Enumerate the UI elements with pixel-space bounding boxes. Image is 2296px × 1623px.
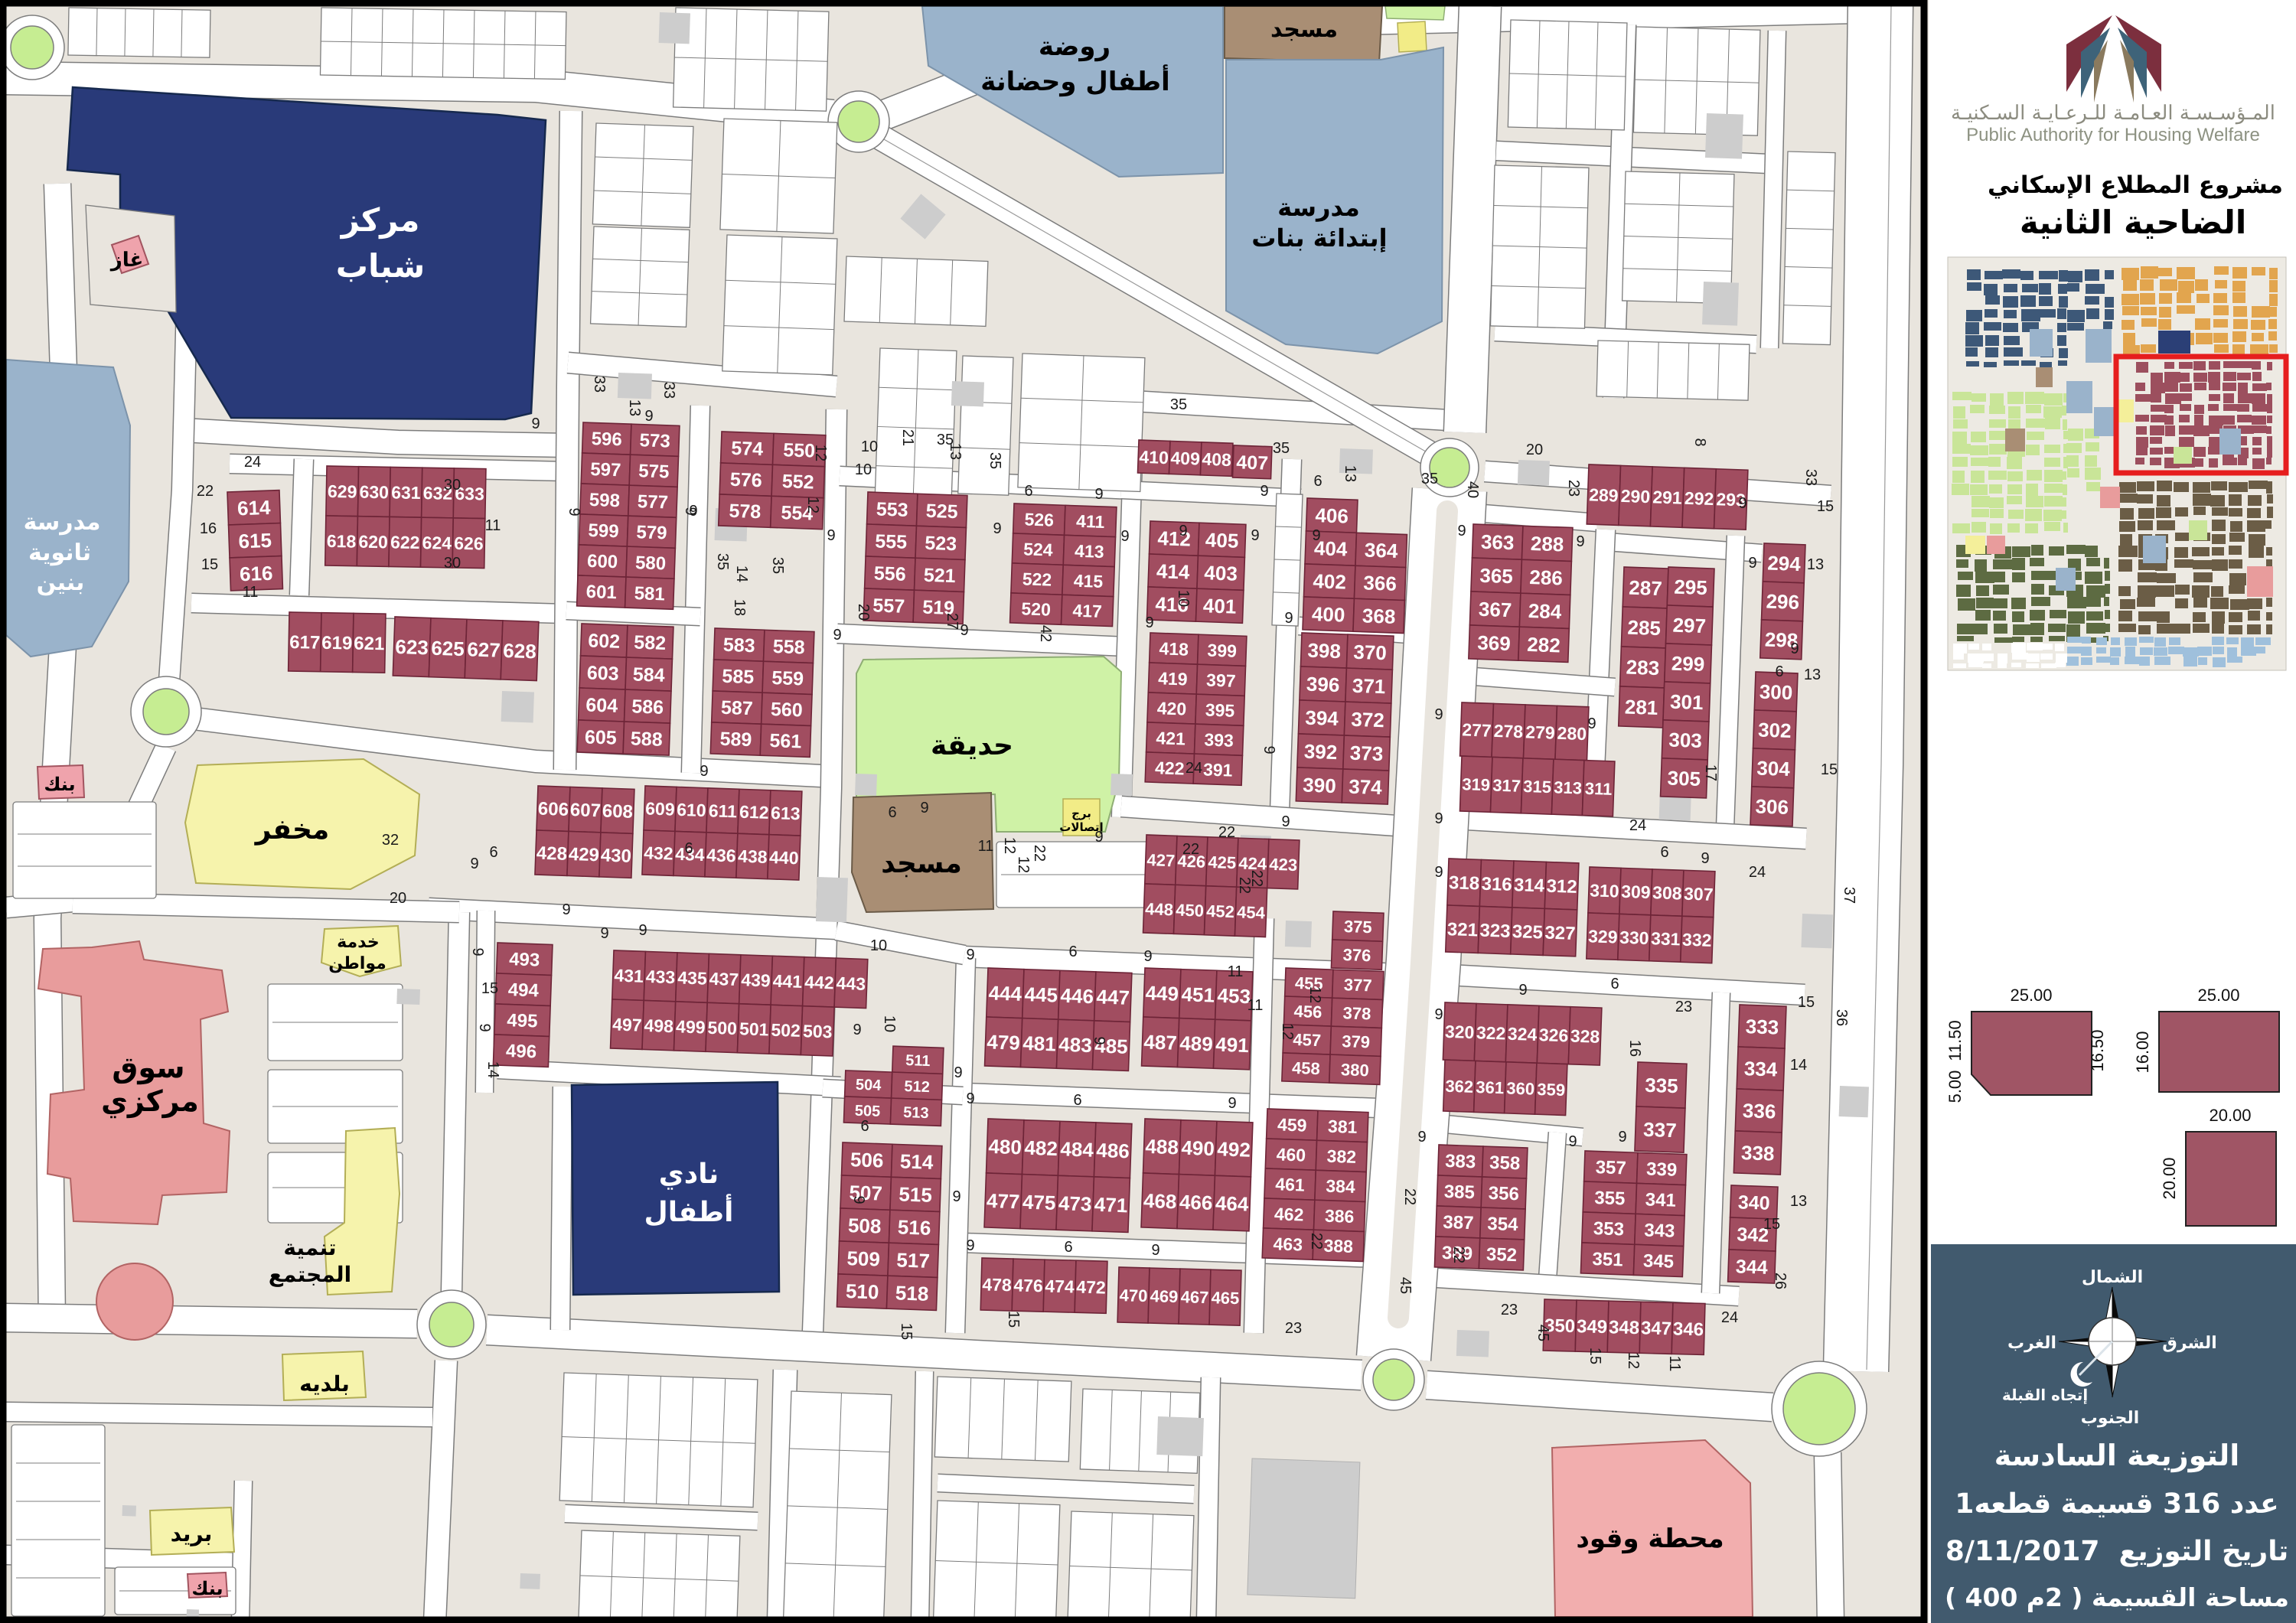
svg-text:312: 312: [1546, 876, 1577, 898]
svg-text:558: 558: [772, 636, 805, 658]
svg-text:379: 379: [1342, 1031, 1371, 1051]
svg-text:13: 13: [1804, 666, 1821, 683]
svg-text:302: 302: [1758, 719, 1792, 742]
svg-text:467: 467: [1180, 1287, 1208, 1307]
svg-text:493: 493: [509, 949, 540, 970]
svg-text:9: 9: [1151, 1242, 1159, 1259]
svg-text:9: 9: [700, 763, 708, 780]
svg-text:6: 6: [684, 840, 693, 857]
svg-text:13: 13: [1790, 1193, 1807, 1210]
svg-text:6: 6: [489, 844, 497, 861]
svg-text:584: 584: [632, 663, 665, 686]
svg-text:295: 295: [1674, 575, 1707, 599]
svg-text:399: 399: [1207, 640, 1237, 661]
svg-text:15: 15: [1798, 994, 1815, 1011]
svg-text:422: 422: [1155, 758, 1185, 778]
svg-text:445: 445: [1024, 983, 1058, 1006]
svg-text:9: 9: [1568, 1133, 1577, 1150]
svg-text:383: 383: [1445, 1151, 1476, 1172]
svg-text:472: 472: [1076, 1277, 1106, 1298]
svg-text:573: 573: [639, 430, 670, 451]
svg-text:608: 608: [602, 800, 633, 822]
svg-text:45: 45: [1534, 1325, 1551, 1341]
svg-text:45: 45: [1397, 1277, 1414, 1294]
svg-text:560: 560: [770, 699, 803, 721]
svg-text:631: 631: [391, 482, 421, 503]
svg-text:356: 356: [1488, 1183, 1519, 1204]
svg-text:620: 620: [358, 532, 388, 552]
svg-text:418: 418: [1159, 638, 1189, 659]
svg-text:16.50: 16.50: [2088, 1029, 2107, 1071]
svg-text:357: 357: [1595, 1157, 1626, 1178]
svg-text:421: 421: [1156, 728, 1186, 748]
svg-text:461: 461: [1275, 1174, 1305, 1194]
svg-text:16: 16: [1626, 1040, 1643, 1057]
svg-text:341: 341: [1645, 1189, 1676, 1211]
svg-text:407: 407: [1236, 451, 1269, 474]
svg-text:15: 15: [898, 1323, 915, 1340]
svg-text:9: 9: [1261, 745, 1277, 754]
svg-text:22: 22: [197, 483, 214, 500]
svg-text:473: 473: [1058, 1191, 1091, 1215]
svg-text:20.00: 20.00: [2209, 1106, 2251, 1125]
svg-text:289: 289: [1589, 484, 1619, 505]
svg-text:403: 403: [1204, 561, 1238, 585]
svg-text:502: 502: [771, 1020, 801, 1041]
svg-text:336: 336: [1742, 1099, 1776, 1123]
svg-text:35: 35: [769, 557, 786, 574]
svg-text:415: 415: [1073, 571, 1103, 592]
svg-text:373: 373: [1349, 741, 1383, 765]
svg-text:15: 15: [1763, 1216, 1780, 1233]
svg-text:405: 405: [1205, 528, 1238, 552]
svg-text:625: 625: [431, 637, 465, 660]
svg-text:556: 556: [873, 562, 906, 585]
svg-text:9: 9: [1251, 527, 1259, 544]
svg-text:10: 10: [855, 461, 872, 478]
svg-text:9: 9: [1281, 813, 1290, 830]
svg-text:9: 9: [682, 507, 699, 515]
svg-text:6: 6: [888, 804, 896, 821]
svg-text:402: 402: [1313, 569, 1346, 593]
svg-text:582: 582: [634, 632, 667, 654]
svg-text:367: 367: [1478, 598, 1512, 621]
svg-text:456: 456: [1293, 1002, 1322, 1022]
svg-text:604: 604: [585, 694, 618, 716]
svg-text:628: 628: [503, 639, 536, 663]
svg-text:282: 282: [1527, 633, 1561, 657]
svg-text:9: 9: [853, 1022, 861, 1038]
svg-text:18: 18: [731, 599, 748, 616]
svg-text:362: 362: [1445, 1077, 1474, 1097]
svg-text:465: 465: [1211, 1288, 1239, 1308]
svg-text:464: 464: [1215, 1191, 1249, 1216]
svg-text:12: 12: [1625, 1352, 1642, 1369]
svg-text:23: 23: [1285, 1320, 1302, 1337]
svg-text:310: 310: [1590, 880, 1619, 901]
svg-text:9: 9: [1417, 1129, 1426, 1146]
svg-text:460: 460: [1276, 1144, 1306, 1165]
svg-text:518: 518: [895, 1281, 928, 1305]
svg-text:587: 587: [721, 697, 754, 719]
svg-text:301: 301: [1670, 690, 1704, 714]
svg-text:411: 411: [1076, 511, 1105, 532]
svg-text:9: 9: [1790, 640, 1799, 657]
svg-text:306: 306: [1755, 795, 1789, 819]
svg-text:346: 346: [1673, 1318, 1704, 1340]
svg-text:574: 574: [731, 438, 764, 460]
svg-text:9: 9: [1091, 1036, 1107, 1045]
svg-text:492: 492: [1217, 1137, 1251, 1161]
svg-text:474: 474: [1045, 1276, 1075, 1296]
svg-text:277: 277: [1462, 719, 1492, 740]
svg-text:513: 513: [903, 1104, 929, 1122]
svg-text:24: 24: [1629, 817, 1646, 834]
svg-text:23: 23: [1565, 480, 1582, 497]
svg-text:423: 423: [1269, 855, 1298, 875]
svg-text:509: 509: [846, 1247, 880, 1270]
svg-text:619: 619: [321, 633, 353, 654]
svg-text:307: 307: [1684, 884, 1714, 904]
svg-text:20.00: 20.00: [2160, 1157, 2179, 1199]
svg-text:9: 9: [920, 800, 928, 816]
svg-text:409: 409: [1170, 448, 1200, 468]
svg-text:345: 345: [1643, 1250, 1675, 1272]
svg-text:6: 6: [1660, 844, 1668, 861]
svg-text:27: 27: [944, 613, 960, 630]
svg-text:9: 9: [476, 1023, 493, 1031]
svg-text:449: 449: [1145, 981, 1179, 1005]
svg-text:612: 612: [739, 802, 769, 823]
svg-text:14: 14: [484, 1061, 501, 1078]
svg-text:624: 624: [422, 533, 452, 553]
svg-text:327: 327: [1544, 923, 1576, 944]
svg-text:370: 370: [1353, 640, 1387, 664]
svg-text:414: 414: [1156, 559, 1191, 584]
svg-text:344: 344: [1735, 1256, 1768, 1278]
svg-text:425: 425: [1208, 852, 1237, 872]
svg-text:583: 583: [722, 634, 755, 657]
svg-text:9: 9: [1457, 523, 1466, 539]
svg-text:515: 515: [899, 1182, 932, 1206]
svg-text:561: 561: [769, 730, 802, 752]
svg-text:600: 600: [587, 551, 618, 572]
svg-text:11: 11: [1247, 997, 1264, 1014]
svg-text:9: 9: [850, 1195, 867, 1204]
svg-text:510: 510: [846, 1279, 879, 1303]
svg-text:24: 24: [244, 454, 261, 471]
svg-text:552: 552: [781, 471, 814, 493]
svg-text:452: 452: [1206, 901, 1235, 921]
svg-text:285: 285: [1627, 616, 1661, 640]
svg-text:20: 20: [390, 890, 406, 907]
svg-text:332: 332: [1682, 930, 1712, 950]
svg-text:397: 397: [1206, 670, 1236, 691]
svg-text:446: 446: [1060, 984, 1094, 1008]
svg-text:377: 377: [1343, 975, 1372, 995]
svg-text:9: 9: [1738, 495, 1746, 512]
svg-text:559: 559: [771, 667, 804, 689]
svg-text:12: 12: [1306, 986, 1323, 1003]
svg-text:440: 440: [769, 847, 799, 868]
svg-text:376: 376: [1342, 945, 1371, 965]
svg-text:364: 364: [1364, 538, 1398, 562]
svg-text:328: 328: [1570, 1026, 1600, 1047]
svg-text:606: 606: [537, 799, 569, 820]
svg-text:23: 23: [1501, 1302, 1518, 1318]
svg-text:281: 281: [1624, 696, 1658, 719]
svg-text:16: 16: [200, 520, 217, 537]
svg-text:33: 33: [1802, 469, 1819, 486]
svg-text:291: 291: [1652, 487, 1682, 507]
svg-text:313: 313: [1554, 777, 1583, 797]
svg-text:13: 13: [626, 399, 643, 416]
svg-text:15: 15: [1587, 1348, 1603, 1364]
svg-text:618: 618: [327, 531, 357, 552]
svg-text:605: 605: [584, 726, 617, 748]
svg-text:366: 366: [1363, 571, 1397, 595]
svg-text:9: 9: [1434, 810, 1443, 827]
svg-text:305: 305: [1667, 767, 1701, 790]
svg-text:11: 11: [978, 838, 994, 855]
svg-text:11: 11: [243, 584, 259, 601]
svg-text:525: 525: [925, 500, 958, 523]
svg-text:9: 9: [1312, 527, 1320, 544]
svg-text:630: 630: [359, 482, 389, 503]
svg-text:20: 20: [1526, 442, 1543, 458]
svg-text:577: 577: [637, 491, 668, 513]
svg-text:22: 22: [1248, 870, 1265, 887]
svg-text:37: 37: [1841, 887, 1857, 904]
svg-text:482: 482: [1024, 1136, 1058, 1160]
svg-text:9: 9: [1434, 1006, 1443, 1023]
svg-text:339: 339: [1646, 1159, 1678, 1180]
svg-text:420: 420: [1156, 698, 1186, 719]
svg-text:6: 6: [1610, 976, 1619, 992]
svg-text:9: 9: [1228, 1095, 1236, 1112]
svg-text:607: 607: [569, 800, 601, 821]
svg-text:363: 363: [1480, 530, 1514, 554]
svg-text:290: 290: [1620, 486, 1650, 507]
svg-text:521: 521: [923, 565, 956, 587]
svg-text:427: 427: [1146, 850, 1176, 870]
svg-text:613: 613: [771, 803, 801, 823]
svg-text:491: 491: [1215, 1033, 1249, 1057]
svg-text:394: 394: [1305, 706, 1339, 731]
svg-text:6: 6: [1313, 473, 1322, 490]
svg-text:597: 597: [590, 459, 621, 481]
svg-text:9: 9: [1179, 523, 1187, 539]
svg-text:9: 9: [1260, 483, 1268, 500]
svg-text:11.50: 11.50: [1945, 1020, 1965, 1061]
svg-text:25.00: 25.00: [2197, 986, 2239, 1005]
svg-text:378: 378: [1342, 1003, 1371, 1023]
svg-text:588: 588: [630, 728, 663, 750]
svg-text:596: 596: [591, 429, 622, 450]
svg-text:9: 9: [966, 947, 974, 963]
svg-text:9: 9: [1618, 1129, 1626, 1146]
svg-text:369: 369: [1477, 631, 1511, 655]
svg-text:462: 462: [1274, 1204, 1304, 1224]
svg-text:614: 614: [237, 496, 272, 520]
svg-text:308: 308: [1652, 882, 1682, 903]
svg-text:623: 623: [395, 635, 429, 659]
svg-text:575: 575: [638, 461, 670, 482]
svg-text:466: 466: [1179, 1191, 1213, 1214]
svg-text:311: 311: [1584, 779, 1612, 799]
svg-text:391: 391: [1203, 759, 1233, 780]
svg-text:500: 500: [707, 1018, 737, 1038]
svg-text:479: 479: [987, 1030, 1020, 1054]
svg-text:326: 326: [1538, 1025, 1568, 1045]
svg-text:9: 9: [1701, 850, 1709, 867]
svg-text:489: 489: [1179, 1031, 1213, 1055]
svg-text:351: 351: [1592, 1249, 1623, 1270]
svg-text:469: 469: [1150, 1286, 1178, 1306]
svg-text:9: 9: [993, 520, 1001, 537]
svg-text:347: 347: [1641, 1318, 1672, 1339]
svg-text:348: 348: [1609, 1317, 1640, 1338]
svg-text:296: 296: [1766, 590, 1799, 614]
svg-text:297: 297: [1672, 614, 1706, 637]
svg-text:517: 517: [896, 1248, 930, 1272]
svg-text:325: 325: [1512, 921, 1543, 943]
svg-text:9: 9: [1094, 486, 1103, 503]
svg-text:12: 12: [812, 445, 829, 461]
svg-text:375: 375: [1344, 917, 1373, 937]
svg-text:523: 523: [925, 533, 957, 555]
svg-text:9: 9: [954, 1064, 962, 1081]
svg-text:387: 387: [1443, 1212, 1474, 1234]
svg-text:331: 331: [1651, 928, 1681, 949]
svg-text:288: 288: [1530, 532, 1564, 556]
svg-text:432: 432: [644, 842, 673, 863]
svg-text:22: 22: [1031, 845, 1048, 862]
svg-text:358: 358: [1489, 1152, 1521, 1174]
svg-text:453: 453: [1217, 984, 1251, 1008]
svg-text:12: 12: [1015, 856, 1032, 873]
svg-text:581: 581: [634, 583, 665, 605]
svg-text:360: 360: [1506, 1078, 1535, 1098]
svg-text:448: 448: [1145, 899, 1174, 919]
svg-text:522: 522: [1022, 569, 1052, 589]
svg-text:10: 10: [861, 438, 878, 455]
svg-text:10: 10: [1175, 590, 1192, 607]
svg-text:21: 21: [899, 429, 916, 446]
svg-text:609: 609: [645, 798, 675, 819]
svg-text:488: 488: [1145, 1135, 1179, 1159]
svg-text:330: 330: [1619, 927, 1649, 948]
svg-text:443: 443: [836, 973, 866, 994]
svg-text:22: 22: [1308, 1233, 1325, 1250]
svg-text:598: 598: [589, 490, 620, 511]
svg-text:335: 335: [1645, 1074, 1678, 1097]
svg-text:334: 334: [1743, 1057, 1778, 1081]
svg-text:317: 317: [1492, 776, 1521, 796]
svg-text:382: 382: [1326, 1146, 1356, 1167]
svg-text:557: 557: [872, 595, 905, 617]
svg-text:9: 9: [1145, 614, 1153, 631]
svg-text:15: 15: [481, 980, 498, 997]
svg-text:9: 9: [644, 408, 653, 425]
svg-text:459: 459: [1277, 1114, 1307, 1135]
svg-text:Public Authority for Housing W: Public Authority for Housing Welfare: [1966, 125, 2260, 145]
svg-text:395: 395: [1205, 699, 1234, 720]
svg-text:359: 359: [1537, 1080, 1566, 1100]
svg-text:477: 477: [987, 1189, 1020, 1213]
svg-text:22: 22: [1218, 824, 1235, 841]
svg-text:349: 349: [1577, 1316, 1608, 1338]
svg-text:494: 494: [507, 979, 540, 1001]
svg-text:15: 15: [1817, 498, 1834, 515]
svg-text:550: 550: [783, 439, 816, 461]
svg-text:9: 9: [960, 622, 968, 639]
svg-text:602: 602: [588, 630, 621, 652]
svg-text:283: 283: [1626, 656, 1659, 680]
svg-text:9: 9: [1120, 528, 1129, 545]
svg-text:627: 627: [467, 637, 501, 661]
svg-text:436: 436: [706, 845, 736, 865]
svg-text:320: 320: [1445, 1022, 1475, 1042]
svg-text:15: 15: [201, 556, 218, 573]
svg-text:599: 599: [588, 520, 619, 542]
svg-text:478: 478: [982, 1274, 1012, 1295]
svg-text:576: 576: [729, 469, 762, 491]
svg-text:13: 13: [947, 443, 964, 460]
svg-text:497: 497: [612, 1014, 642, 1035]
svg-text:384: 384: [1326, 1176, 1355, 1197]
svg-text:9: 9: [1284, 610, 1293, 627]
svg-text:408: 408: [1202, 449, 1231, 470]
svg-text:40: 40: [1464, 481, 1481, 498]
svg-text:441: 441: [772, 971, 802, 992]
svg-text:499: 499: [676, 1016, 706, 1037]
svg-text:430: 430: [600, 845, 631, 866]
svg-text:442: 442: [804, 972, 834, 992]
svg-text:371: 371: [1352, 674, 1385, 698]
svg-text:9: 9: [1094, 829, 1103, 846]
svg-text:12: 12: [804, 497, 821, 513]
svg-text:413: 413: [1075, 541, 1104, 562]
svg-text:393: 393: [1204, 729, 1234, 750]
svg-text:322: 322: [1476, 1022, 1506, 1043]
svg-text:9: 9: [966, 1237, 974, 1254]
svg-text:8: 8: [1691, 438, 1708, 446]
svg-text:579: 579: [636, 522, 667, 543]
svg-text:13: 13: [1342, 465, 1358, 482]
svg-text:388: 388: [1323, 1236, 1353, 1256]
svg-text:35: 35: [987, 452, 1003, 469]
svg-text:13: 13: [1807, 556, 1824, 573]
svg-text:480: 480: [988, 1135, 1022, 1159]
svg-text:323: 323: [1479, 921, 1511, 942]
svg-text:25.00: 25.00: [2010, 986, 2052, 1005]
svg-text:512: 512: [904, 1078, 930, 1096]
svg-text:475: 475: [1022, 1191, 1056, 1214]
svg-text:471: 471: [1094, 1193, 1127, 1217]
svg-text:616: 616: [240, 562, 273, 585]
svg-text:16.00: 16.00: [2133, 1031, 2152, 1073]
svg-text:508: 508: [848, 1214, 882, 1237]
svg-text:30: 30: [444, 477, 461, 494]
svg-text:36: 36: [1833, 1009, 1850, 1026]
svg-text:17: 17: [1702, 764, 1719, 781]
svg-text:386: 386: [1325, 1206, 1355, 1227]
svg-text:481: 481: [1022, 1031, 1056, 1055]
svg-text:9: 9: [966, 1090, 974, 1107]
svg-text:487: 487: [1143, 1030, 1177, 1054]
svg-text:431: 431: [614, 965, 644, 986]
